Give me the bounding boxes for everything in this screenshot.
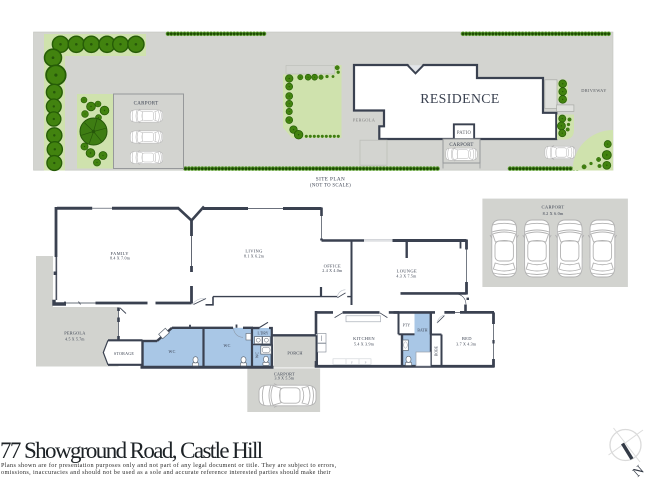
svg-text:L'DRY: L'DRY: [258, 331, 269, 335]
svg-text:77 Showground Road, Castle Hil: 77 Showground Road, Castle Hill: [0, 438, 263, 463]
svg-text:SITE PLAN: SITE PLAN: [316, 176, 345, 182]
svg-text:PERGOLA: PERGOLA: [353, 118, 376, 123]
svg-text:Plans shown are for presentati: Plans shown are for presentation purpose…: [1, 462, 337, 469]
svg-text:8.4 X 7.0m: 8.4 X 7.0m: [110, 256, 131, 261]
svg-text:DRIVEWAY: DRIVEWAY: [581, 88, 607, 93]
svg-text:RESIDENCE: RESIDENCE: [420, 91, 499, 106]
svg-text:PORCH: PORCH: [287, 351, 302, 356]
svg-text:KITCHEN: KITCHEN: [353, 336, 375, 341]
svg-text:P: P: [365, 360, 367, 364]
svg-text:WC: WC: [224, 343, 231, 348]
svg-text:F: F: [351, 360, 353, 364]
svg-text:4.3 X 7.5m: 4.3 X 7.5m: [396, 274, 417, 279]
svg-text:BATH: BATH: [417, 329, 427, 333]
svg-text:omissions, inaccuracies and sh: omissions, inaccuracies and should not b…: [1, 469, 331, 476]
svg-text:ROBE: ROBE: [434, 345, 438, 356]
svg-text:8.1 X 6.2m: 8.1 X 6.2m: [244, 254, 265, 259]
svg-text:3.7 X 4.3m: 3.7 X 4.3m: [456, 341, 477, 346]
svg-text:WC: WC: [256, 351, 260, 358]
svg-text:BED: BED: [462, 336, 472, 341]
svg-text:PATIO: PATIO: [457, 131, 472, 136]
svg-text:3.9 X 5.5m: 3.9 X 5.5m: [275, 376, 295, 380]
svg-text:4.5 X 5.7m: 4.5 X 5.7m: [65, 338, 85, 342]
svg-text:PTY: PTY: [403, 324, 411, 328]
svg-text:WC: WC: [169, 349, 176, 354]
svg-text:CARPORT: CARPORT: [541, 204, 564, 209]
svg-text:PERGOLA: PERGOLA: [64, 331, 86, 336]
svg-text:2.4 X 4.0m: 2.4 X 4.0m: [322, 268, 343, 273]
svg-text:5.4 X 3.9m: 5.4 X 3.9m: [354, 342, 375, 347]
svg-text:CARPORT: CARPORT: [449, 143, 473, 148]
svg-text:CARPORT: CARPORT: [134, 102, 159, 107]
svg-text:8.2 X 6.0m: 8.2 X 6.0m: [543, 211, 564, 216]
svg-text:STORAGE: STORAGE: [114, 351, 135, 356]
svg-text:(NOT TO SCALE): (NOT TO SCALE): [310, 183, 351, 188]
